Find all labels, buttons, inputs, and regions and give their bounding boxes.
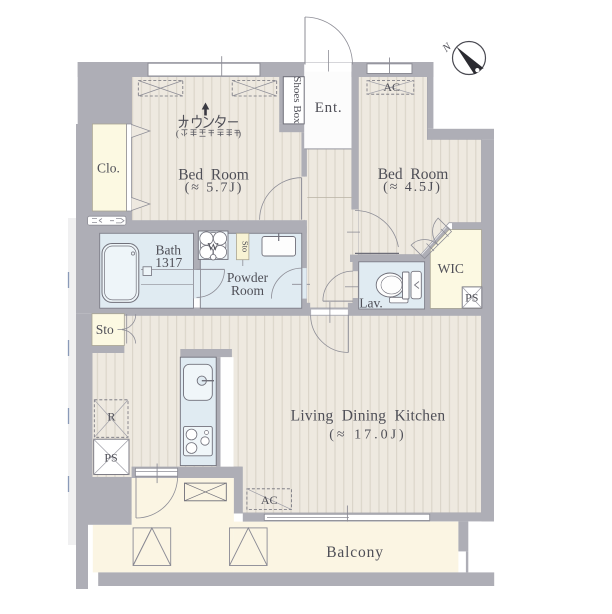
svg-text:Ent.: Ent. <box>315 100 343 116</box>
svg-text:Room: Room <box>231 283 265 298</box>
svg-text:AC: AC <box>383 80 400 94</box>
svg-text:Clo.: Clo. <box>97 161 120 176</box>
svg-text:Balcony: Balcony <box>326 544 384 561</box>
svg-text:Sto: Sto <box>96 322 114 337</box>
svg-text:Shoes Box: Shoes Box <box>291 76 303 124</box>
svg-text:(≈ 4.5J): (≈ 4.5J) <box>383 180 442 195</box>
svg-text:(≈ 5.7J): (≈ 5.7J) <box>185 181 244 196</box>
svg-text:PS: PS <box>104 451 117 465</box>
svg-text:W: W <box>207 240 219 254</box>
svg-text:PS: PS <box>465 291 478 305</box>
svg-text:Sto: Sto <box>241 241 251 252</box>
svg-text:WIC: WIC <box>438 261 464 276</box>
svg-text:AC: AC <box>261 493 278 507</box>
svg-text:1317: 1317 <box>155 255 182 270</box>
svg-text:(≈ 17.0J): (≈ 17.0J) <box>329 428 406 443</box>
svg-text:Living Dining Kitchen: Living Dining Kitchen <box>291 408 446 425</box>
svg-text:R: R <box>107 410 115 424</box>
svg-text:(: ( <box>176 129 179 140</box>
svg-text:Lav.: Lav. <box>359 296 383 311</box>
